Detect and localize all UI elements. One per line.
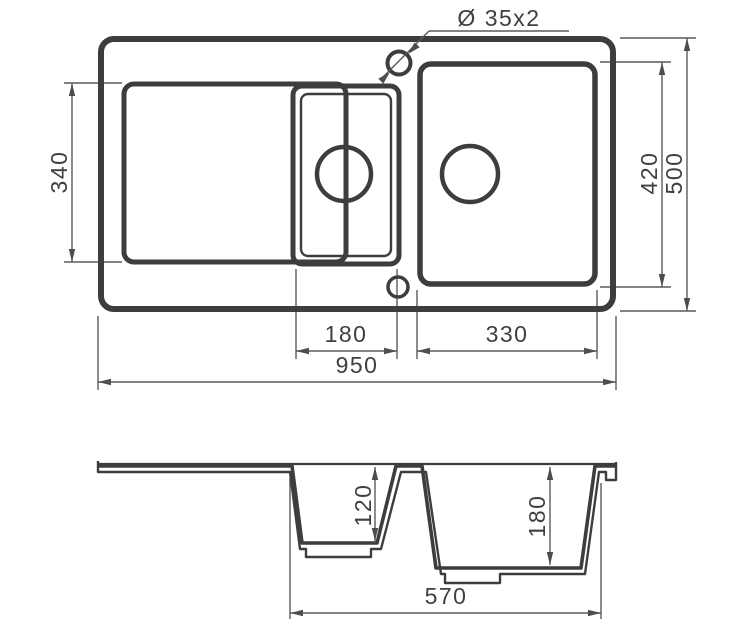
dim-label: 180 <box>524 495 550 538</box>
tap-hole-label: Ø 35x2 <box>457 5 540 31</box>
dim-label: 330 <box>486 321 529 347</box>
dim-label: 570 <box>425 583 468 609</box>
arrowhead-up-icon <box>547 467 553 480</box>
dim-main-bowl-width: 330 <box>417 290 597 359</box>
arrowhead-up-icon <box>659 62 665 75</box>
dim-main-bowl-depth: 180 <box>524 467 553 565</box>
arrowhead-right-icon <box>603 379 616 385</box>
arrowhead-diagonal-icon <box>408 42 420 54</box>
arrowhead-up-icon <box>69 83 75 96</box>
arrowhead-right-icon <box>584 348 597 354</box>
section-view: 570 120 180 <box>98 461 616 619</box>
main-bowl-outline <box>420 64 595 284</box>
dim-half-bowl-width: 180 <box>296 269 397 359</box>
tap-hole-bottom <box>388 277 408 297</box>
arrowhead-left-icon <box>98 379 111 385</box>
sink-technical-drawing: 340 420 500 180 <box>0 0 750 637</box>
drainboard-outline <box>124 84 346 262</box>
top-view: 340 420 500 180 <box>46 5 696 390</box>
arrowhead-right-icon <box>384 348 397 354</box>
arrowhead-left-icon <box>417 348 430 354</box>
dim-label: 340 <box>46 151 72 194</box>
arrowhead-up-icon <box>684 38 690 51</box>
dim-label: 120 <box>350 484 376 527</box>
dim-label: 500 <box>661 152 687 195</box>
dim-label: 180 <box>325 321 368 347</box>
dim-label: 950 <box>336 352 379 378</box>
drawing-canvas: 340 420 500 180 <box>0 0 750 637</box>
arrowhead-left-icon <box>290 610 303 616</box>
arrowhead-right-icon <box>588 610 601 616</box>
tap-hole-top <box>388 52 411 75</box>
dim-label: 420 <box>636 152 662 195</box>
arrowhead-down-icon <box>547 552 553 565</box>
arrowhead-down-icon <box>684 298 690 311</box>
dim-bowls-overall-width: 570 <box>290 478 601 619</box>
arrowhead-up-icon <box>372 467 378 480</box>
arrowhead-left-icon <box>296 348 309 354</box>
arrowhead-diagonal-icon <box>378 72 390 84</box>
arrowhead-down-icon <box>69 249 75 262</box>
arrowhead-down-icon <box>659 274 665 287</box>
dim-half-bowl-depth: 120 <box>350 467 378 541</box>
dim-drainboard-length: 340 <box>46 83 122 262</box>
sink-outline <box>101 39 613 309</box>
main-bowl-drain-hole <box>442 146 498 202</box>
